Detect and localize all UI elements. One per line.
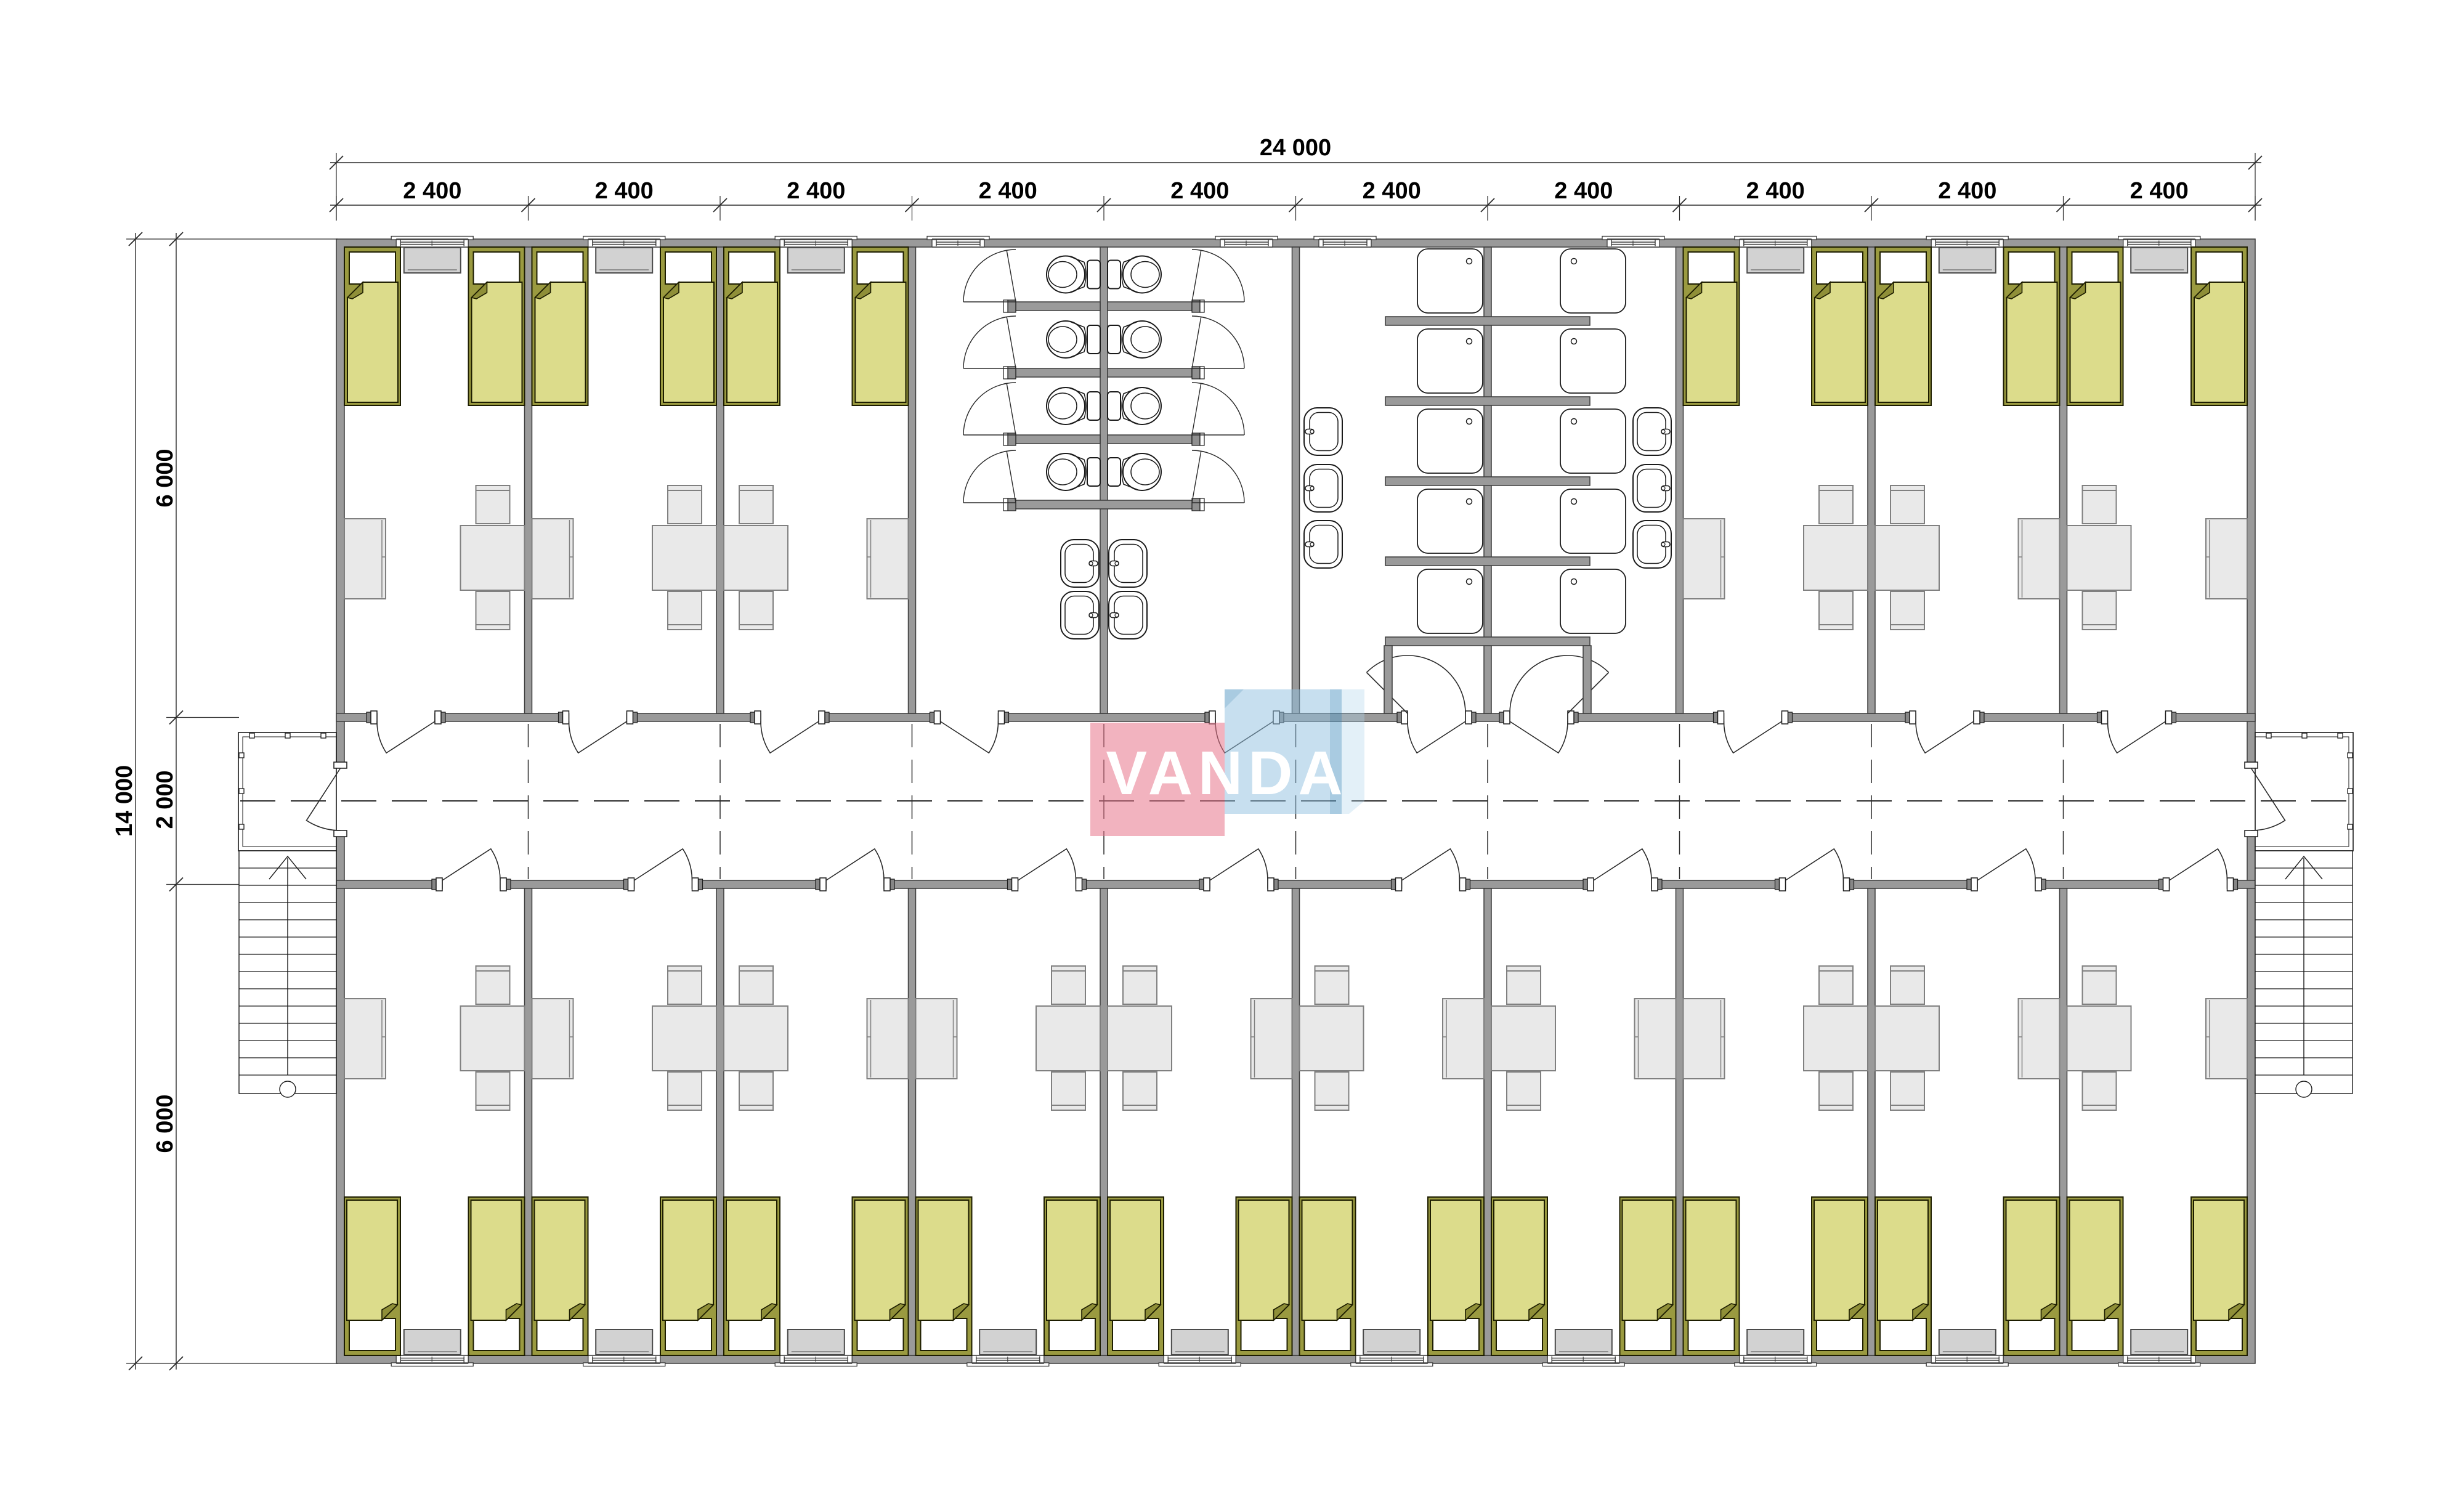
svg-text:2 400: 2 400 (1554, 178, 1613, 204)
svg-text:2 400: 2 400 (1938, 178, 1996, 204)
svg-text:2 400: 2 400 (1170, 178, 1229, 204)
svg-text:2 400: 2 400 (403, 178, 461, 204)
svg-text:2 400: 2 400 (979, 178, 1037, 204)
svg-text:2 000: 2 000 (152, 770, 178, 829)
svg-text:2 400: 2 400 (787, 178, 845, 204)
svg-text:2 400: 2 400 (1746, 178, 1805, 204)
svg-text:6 000: 6 000 (152, 1094, 178, 1153)
svg-text:2 400: 2 400 (595, 178, 654, 204)
svg-text:6 000: 6 000 (152, 449, 178, 507)
svg-text:24 000: 24 000 (1260, 135, 1331, 161)
svg-text:14 000: 14 000 (111, 765, 137, 837)
svg-text:VANDA: VANDA (1106, 739, 1348, 808)
svg-text:2 400: 2 400 (1363, 178, 1421, 204)
svg-text:2 400: 2 400 (2130, 178, 2189, 204)
